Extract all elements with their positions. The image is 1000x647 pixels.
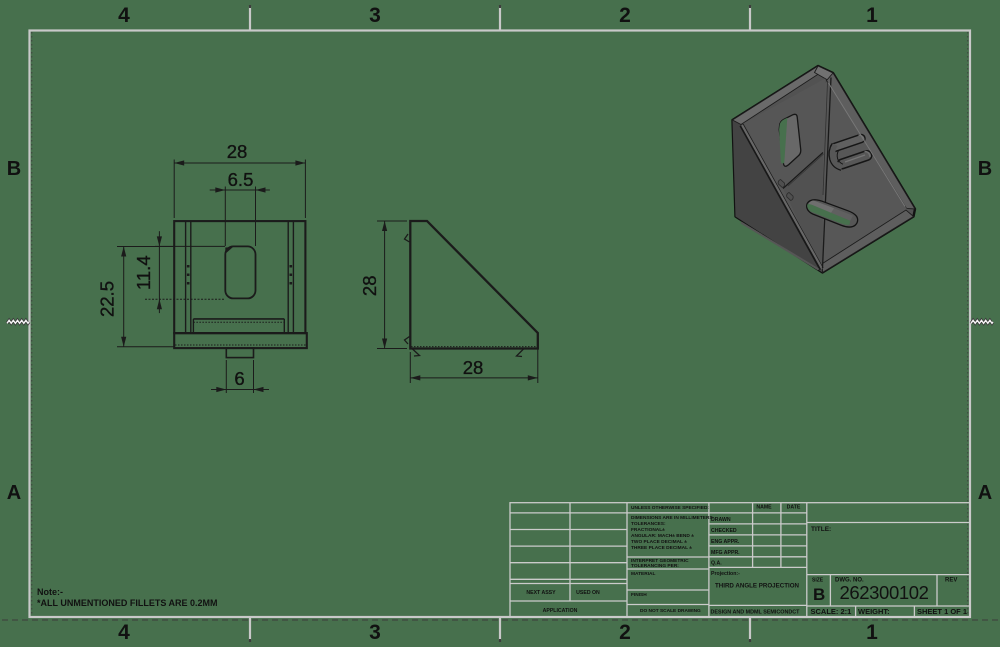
svg-text:USED ON: USED ON [576,590,600,596]
svg-text:CHECKED: CHECKED [711,528,737,534]
svg-text:NAME: NAME [756,505,772,511]
svg-text:6.5: 6.5 [228,169,254,190]
svg-text:APPLICATION: APPLICATION [543,608,578,614]
svg-text:3: 3 [369,4,381,27]
svg-text:MATERIAL: MATERIAL [631,571,655,577]
svg-text:2: 2 [619,621,631,644]
svg-text:THIRD ANGLE PROJECTION: THIRD ANGLE PROJECTION [715,583,800,590]
svg-text:A: A [978,482,992,504]
svg-text:Q.A.: Q.A. [711,561,722,567]
svg-text:1: 1 [866,4,878,27]
svg-text:*ALL UNMENTIONED FILLETS ARE 0: *ALL UNMENTIONED FILLETS ARE 0.2MM [37,598,218,608]
svg-text:ENG APPR.: ENG APPR. [711,539,740,545]
svg-text:DO NOT SCALE DRAWING: DO NOT SCALE DRAWING [640,608,701,614]
svg-text:DATE: DATE [787,505,801,511]
svg-text:Note:-: Note:- [37,587,63,597]
svg-text:4: 4 [118,621,130,644]
svg-text:ANGULAR: MACH± BEND ±: ANGULAR: MACH± BEND ± [631,533,694,539]
svg-text:DIMENSIONS ARE IN MILLIMETERS: DIMENSIONS ARE IN MILLIMETERS [631,515,713,521]
svg-text:28: 28 [359,276,380,297]
svg-text:B: B [813,585,825,604]
svg-text:A: A [7,482,21,504]
svg-text:2: 2 [619,4,631,27]
svg-text:TWO PLACE DECIMAL ±: TWO PLACE DECIMAL ± [631,539,687,545]
svg-text:FRACTIONAL±: FRACTIONAL± [631,527,665,533]
svg-text:TOLERANCING PER:: TOLERANCING PER: [631,563,679,569]
svg-text:MFG APPR.: MFG APPR. [711,550,740,556]
svg-text:TITLE:: TITLE: [811,526,831,533]
svg-text:1: 1 [866,621,878,644]
svg-text:22.5: 22.5 [97,281,118,317]
svg-text:FINISH: FINISH [631,592,647,598]
svg-text:3: 3 [369,621,381,644]
svg-text:WEIGHT:: WEIGHT: [858,607,890,616]
svg-text:11.4: 11.4 [133,255,154,290]
svg-text:UNLESS OTHERWISE SPECIFIED:: UNLESS OTHERWISE SPECIFIED: [631,505,709,511]
svg-text:28: 28 [463,357,484,378]
svg-text:B: B [7,158,21,180]
svg-text:4: 4 [118,4,130,27]
svg-text:28: 28 [227,141,248,162]
svg-text:SCALE: 2:1: SCALE: 2:1 [811,607,852,616]
svg-text:SHEET 1 OF 1: SHEET 1 OF 1 [917,607,967,616]
svg-text:SIZE: SIZE [812,578,824,584]
svg-text:262300102: 262300102 [840,582,929,603]
svg-text:THREE PLACE DECIMAL ±: THREE PLACE DECIMAL ± [631,545,692,551]
svg-text:DRAWN: DRAWN [711,517,731,523]
svg-text:6: 6 [234,368,244,389]
svg-text:DESIGN AND MDML SEMICONDCT: DESIGN AND MDML SEMICONDCT [711,610,801,616]
svg-text:B: B [978,158,992,180]
svg-text:NEXT ASSY: NEXT ASSY [526,590,556,596]
svg-text:TOLERANCES:: TOLERANCES: [631,521,666,527]
svg-text:Projection:-: Projection:- [711,571,740,577]
svg-text:REV: REV [945,578,957,584]
